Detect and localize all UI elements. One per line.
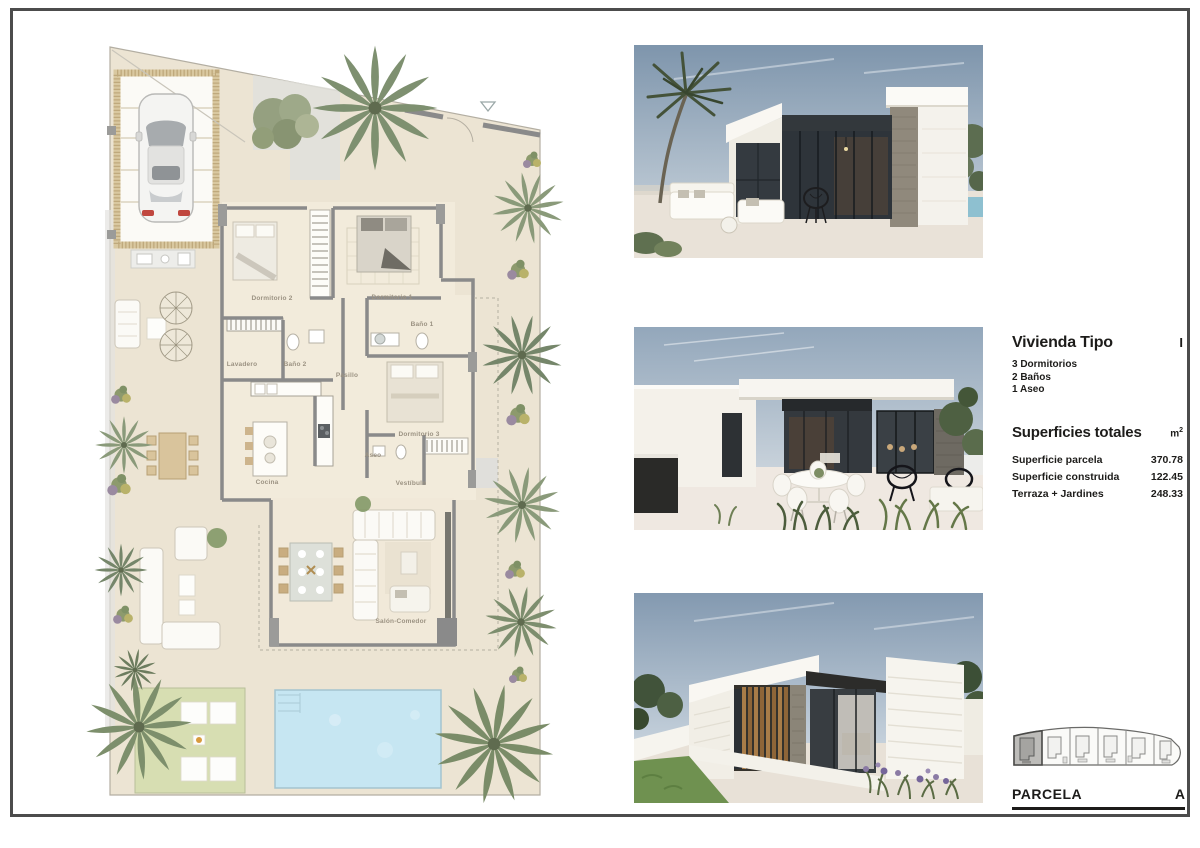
feature-toilet: 1 Aseo [1012,384,1183,397]
kitchen-island [253,422,287,476]
surface-row-parcela: Superficie parcela 370.78 [1012,452,1183,469]
feature-list: 3 Dormitorios 2 Baños 1 Aseo [1012,359,1183,397]
outdoor-kitchen [634,457,678,513]
render-photo-side-garden [634,593,983,803]
surfaces-unit: m2 [1170,427,1183,439]
room-label-lavadero: Lavadero [227,361,258,368]
room-label-aseo: Aseo [365,452,382,459]
stone-pillar [890,107,918,227]
lawn-accent [196,737,202,743]
indoor-plant [355,496,371,512]
site-plan-minimap [1012,722,1185,774]
room-label-dormitorio2: Dormitorio 2 [251,295,292,302]
surfaces-heading: Superficies totales [1012,424,1142,441]
room-label-bano2: Baño 2 [284,361,307,368]
room-label-dormitorio1: Dormitorio 1 [371,294,412,301]
taillight [142,210,154,216]
entrance-marker [481,102,495,111]
stone-pillar [790,685,806,773]
feature-bedrooms: 3 Dormitorios [1012,359,1183,372]
room-label-dormitorio3: Dormitorio 3 [398,431,439,438]
villa-type-index: I [1179,335,1183,350]
render-photo-terrace [634,45,983,258]
floor-plan: Dormitorio 2 Dormitorio 1 Baño 1 Baño 2 … [85,30,565,820]
feature-bathrooms: 2 Baños [1012,372,1183,385]
footer-rule [1012,807,1185,810]
room-label-vestibulo: Vestíbulo [396,480,427,487]
car [136,94,196,222]
surfaces-table: Superficie parcela 370.78 Superficie con… [1012,452,1183,503]
room-label-pasillo: Pasillo [336,372,358,379]
side-path [105,210,115,730]
surface-row-construida: Superficie construida 122.45 [1012,469,1183,486]
planter-bench [930,487,983,511]
room-label-cocina: Cocina [256,479,279,486]
outdoor-dining [147,433,198,479]
pool [275,690,441,788]
parcel-label: PARCELA [1012,786,1082,802]
info-panel: Vivienda Tipo I 3 Dormitorios 2 Baños 1 … [1012,334,1183,503]
surface-row-terraza: Terraza + Jardines 248.33 [1012,486,1183,503]
table-centerpiece [814,468,824,478]
parcel-value: A [1175,786,1185,802]
room-label-salon: Salón-Comedor [376,618,427,625]
villa-type-title: Vivienda Tipo [1012,334,1113,352]
sofa [353,510,435,620]
taillight [178,210,190,216]
render-photo-outdoor-dining [634,327,983,530]
tv-wall [445,512,451,620]
room-label-bano1: Baño 1 [411,321,434,328]
dining-table [290,543,332,601]
parcel-footer: PARCELA A [1012,722,1185,810]
plan-sheet-page: Dormitorio 2 Dormitorio 1 Baño 1 Baño 2 … [0,0,1200,848]
pool-glimpse [966,197,983,217]
